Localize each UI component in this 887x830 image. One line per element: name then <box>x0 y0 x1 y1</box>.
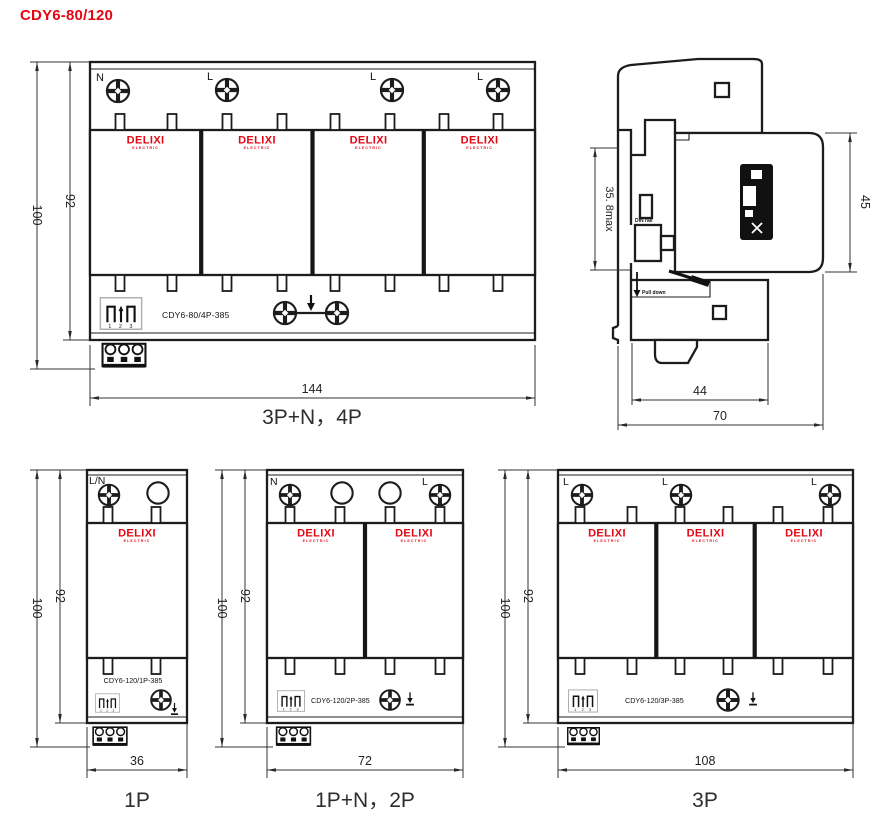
dim-width: 108 <box>695 754 716 768</box>
phillips-screw-icon <box>381 79 403 101</box>
terminal-label: L <box>370 71 376 83</box>
note-release: Pull down <box>642 290 666 296</box>
terminal-label: L <box>207 71 213 83</box>
phillips-screw-icon <box>107 80 129 102</box>
page-title: CDY6-80/120 <box>20 7 113 24</box>
phillips-screw-icon <box>151 690 171 710</box>
terminal-block-icon <box>568 728 600 746</box>
terminal-label: L <box>811 476 817 488</box>
phillips-screw-icon <box>487 79 509 101</box>
terminal-block-icon <box>93 727 127 746</box>
phillips-screw-icon <box>820 485 841 506</box>
delixi-logo <box>687 528 725 544</box>
dim-width: 36 <box>130 754 144 768</box>
terminal-block-icon <box>103 344 146 368</box>
caption-4p: 3P+N，4P <box>262 406 362 429</box>
dim-outer-height: 100 <box>30 598 44 619</box>
ground-arrow-icon <box>406 692 414 704</box>
diagram-canvas: CDY6-80/120 <box>0 0 887 830</box>
terminal-hole-icon <box>147 482 168 503</box>
delixi-logo <box>297 528 335 544</box>
phillips-screw-icon <box>671 485 692 506</box>
phillips-screw-icon <box>326 302 348 324</box>
remote-contact-symbol <box>277 691 304 712</box>
terminal-hole-icon <box>331 482 352 503</box>
delixi-logo <box>588 528 626 544</box>
dim-body-height: 92 <box>63 194 77 208</box>
dim-body-height: 92 <box>53 589 67 603</box>
ground-arrow-icon <box>171 703 178 714</box>
delixi-logo <box>350 135 388 151</box>
phillips-screw-icon <box>280 485 301 506</box>
dim-width: 144 <box>302 382 323 396</box>
device-3p: L L L CDY6-120/3P-385 <box>558 470 853 745</box>
delixi-logo <box>395 528 433 544</box>
phillips-screw-icon <box>572 485 593 506</box>
terminal-label: L/N <box>89 475 105 487</box>
dim-body-height: 92 <box>238 589 252 603</box>
dim-depth-body: 44 <box>693 384 707 398</box>
model-number: CDY6-120/1P-385 <box>104 676 163 685</box>
delixi-logo <box>461 135 499 151</box>
down-arrow-icon <box>307 295 315 311</box>
device-1p: L/N CDY6-120/1P-385 <box>87 470 187 746</box>
dim-depth-total: 70 <box>713 409 727 423</box>
view-3pn-4p: 100 92 144 <box>25 55 540 435</box>
phillips-screw-icon <box>430 485 451 506</box>
dim-height: 45 <box>858 195 872 209</box>
view-3p: 100 92 108 L L <box>493 462 878 817</box>
phillips-screw-icon <box>99 485 120 506</box>
device-2p: N L CDY6-120/2P-385 <box>267 470 463 746</box>
dim-outer-height: 100 <box>30 205 44 226</box>
caption-3p: 3P <box>692 789 718 812</box>
model-number: CDY6-120/2P-385 <box>311 696 370 705</box>
phillips-screw-icon <box>380 690 400 710</box>
delixi-logo <box>785 528 823 544</box>
dim-outer-height: 100 <box>498 598 512 619</box>
terminal-label: N <box>96 72 104 84</box>
phillips-screw-icon <box>717 689 738 710</box>
delixi-logo <box>127 135 165 151</box>
din-clip <box>635 225 661 261</box>
terminal-label: N <box>270 476 278 488</box>
model-number: CDY6-120/3P-385 <box>625 696 684 705</box>
device-4p: N L L L CDY6-80/4P-385 <box>90 62 535 368</box>
dim-depth-upper: 35. 8max <box>603 186 615 232</box>
terminal-block-icon <box>277 727 311 746</box>
dim-body-height: 92 <box>521 589 535 603</box>
remote-contact-symbol <box>100 298 141 330</box>
terminal-label: L <box>422 476 428 488</box>
terminal-label: L <box>563 476 569 488</box>
delixi-logo <box>118 528 156 544</box>
remote-contact-symbol <box>95 694 119 713</box>
phillips-screw-icon <box>216 79 238 101</box>
dim-width: 72 <box>358 754 372 768</box>
remote-contact-symbol <box>569 690 598 712</box>
device-side: DIN rail Pull down <box>613 59 823 363</box>
phillips-screw-icon <box>274 302 296 324</box>
note-rail: DIN rail <box>635 218 653 224</box>
terminal-label: L <box>662 476 668 488</box>
caption-2p: 1P+N，2P <box>315 789 415 812</box>
view-side: DIN rail Pull down 35. 8max 45 44 70 <box>585 50 887 435</box>
ground-arrow-icon <box>749 692 757 704</box>
terminal-hole-icon <box>379 482 400 503</box>
model-number: CDY6-80/4P-385 <box>162 310 230 320</box>
view-1pn-2p: 100 92 72 N L CDY6-1 <box>210 462 480 817</box>
dim-outer-height: 100 <box>215 598 229 619</box>
view-1p: 100 92 36 L/N CDY6-120/1P-385 1P <box>25 462 200 817</box>
caption-1p: 1P <box>124 789 150 812</box>
delixi-logo <box>238 135 276 151</box>
terminal-label: L <box>477 71 483 83</box>
